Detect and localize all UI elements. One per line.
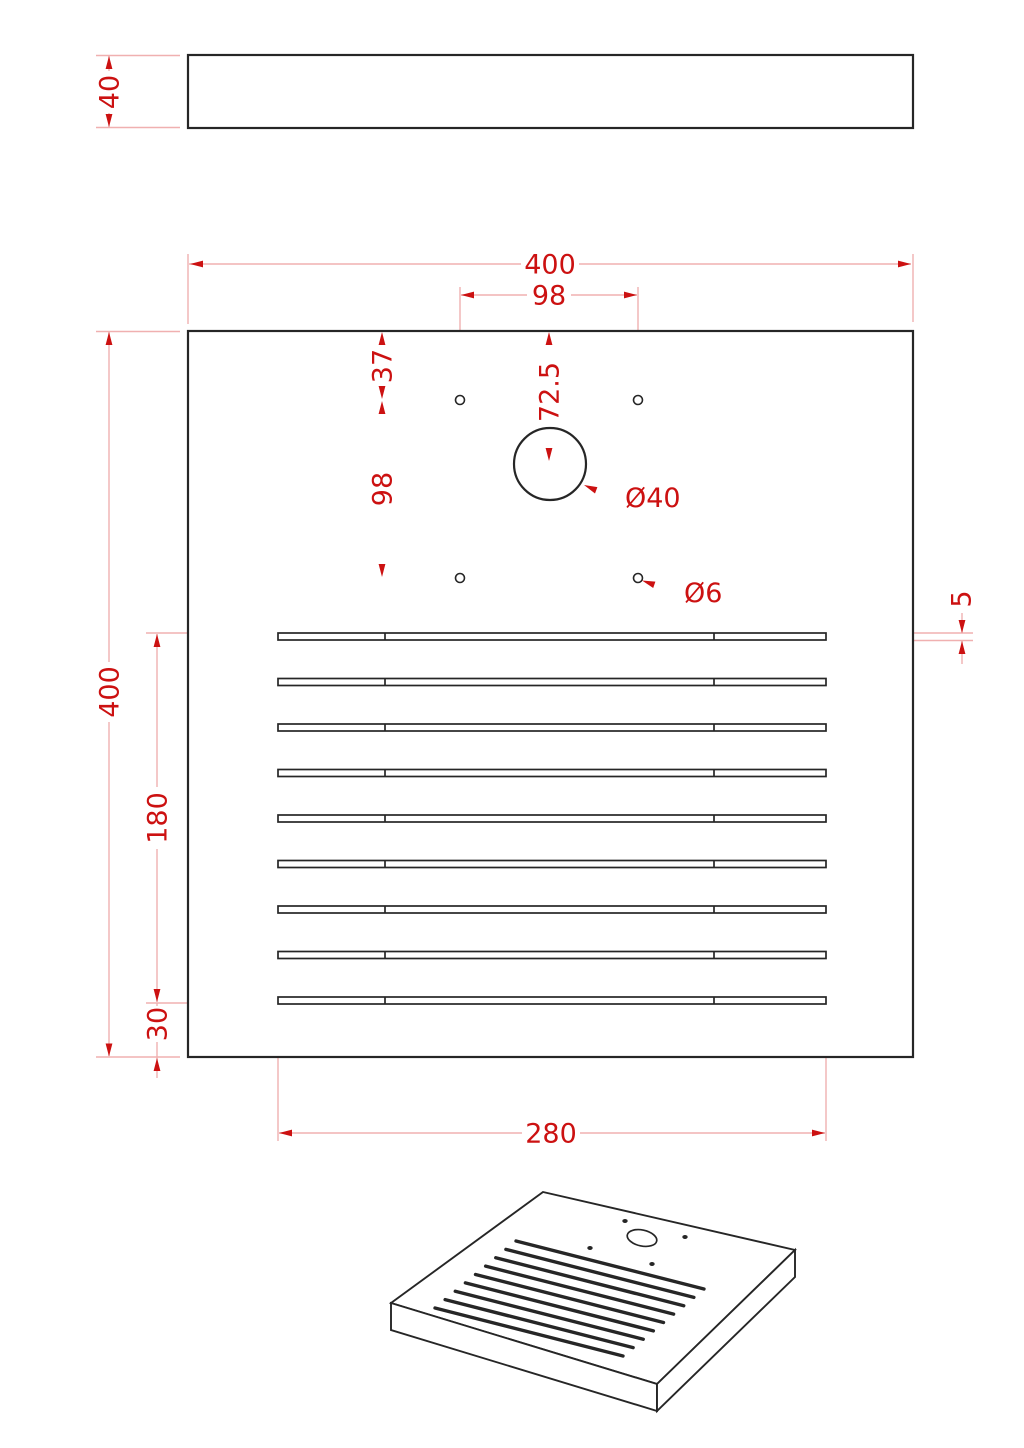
slot — [278, 997, 826, 1004]
circle-offset-dim: 72.5 — [535, 362, 566, 422]
slot — [278, 770, 826, 777]
slot-bottom-margin-dim: 30 — [143, 1007, 174, 1041]
height-dim: 400 — [95, 666, 126, 718]
slot — [278, 679, 826, 686]
circle-diameter-label: Ø40 — [625, 483, 681, 514]
slot-height-dim: 5 — [947, 590, 978, 607]
slot-field-height-dim: 180 — [143, 792, 174, 844]
front-view-outline — [188, 331, 913, 1057]
drawing-page: 40 400 98 37 98 72.5 Ø40 Ø6 5 400 180 30… — [0, 0, 1024, 1448]
slot — [278, 906, 826, 913]
slot — [278, 952, 826, 959]
side-thickness-dim: 40 — [95, 75, 126, 109]
slot — [278, 815, 826, 822]
hole-pitch-x-dim: 98 — [532, 281, 566, 312]
isometric-view — [391, 1192, 795, 1411]
hole-top-offset-dim: 37 — [368, 349, 399, 383]
slot — [278, 861, 826, 868]
width-dim: 400 — [524, 250, 576, 281]
hole-diameter-label: Ø6 — [684, 578, 722, 609]
hole-pitch-y-dim: 98 — [368, 472, 399, 506]
side-view-outline — [188, 55, 913, 128]
iso-top-face — [391, 1192, 795, 1384]
slot-length-dim: 280 — [525, 1119, 577, 1150]
slot — [278, 724, 826, 731]
slot — [278, 633, 826, 640]
